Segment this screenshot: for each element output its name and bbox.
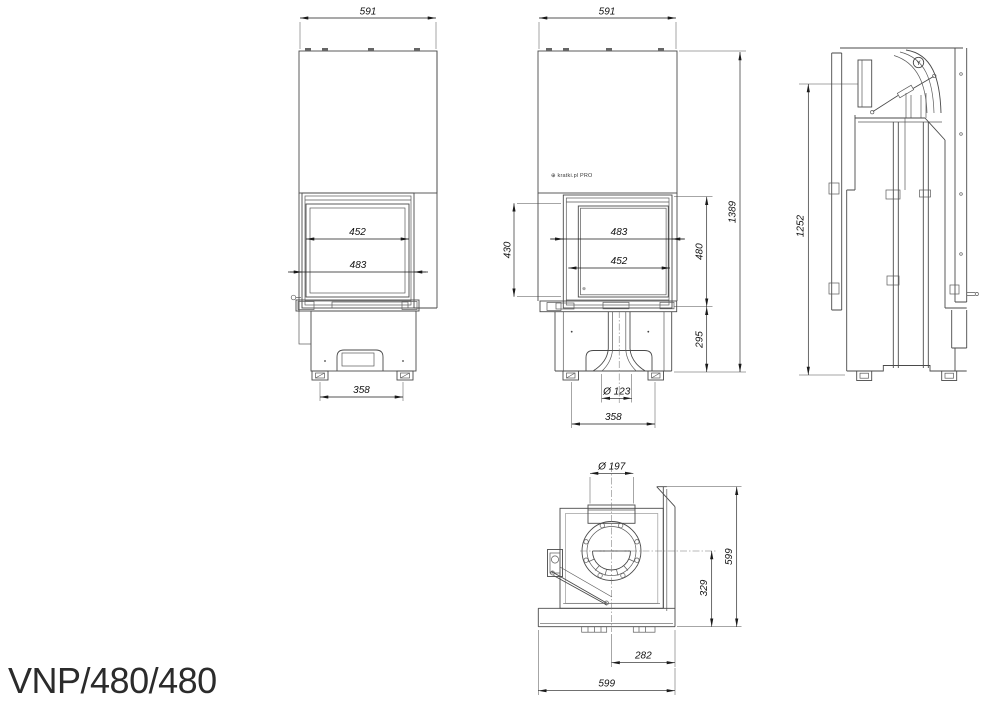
- dimension-glass-width: 452: [568, 256, 670, 268]
- foot-rear: [857, 371, 872, 381]
- rear-rail: [829, 53, 842, 310]
- dim-label: 452: [611, 256, 628, 267]
- door-handle: [291, 295, 296, 300]
- dim-label: 1389: [728, 200, 739, 223]
- hood: [299, 48, 437, 193]
- dim-label: 358: [353, 385, 370, 396]
- flue-collar: [580, 465, 716, 632]
- dimension-glass-height: 430: [503, 203, 562, 296]
- dimension-flue-to-side: 282: [612, 630, 676, 667]
- side-view: Y: [796, 48, 979, 381]
- dim-label: 599: [598, 679, 615, 690]
- dimension-base-height: 295: [674, 307, 746, 372]
- dim-label: 430: [503, 241, 514, 258]
- dim-label: Ø 197: [597, 462, 626, 473]
- front-view-a: 591 452 483 358: [288, 7, 437, 402]
- dimension-glass-width: 452: [306, 227, 409, 239]
- dimension-firebox-height: 480: [674, 197, 713, 307]
- hood: ⊕ kratki.pl PRO: [538, 48, 677, 193]
- base: [296, 300, 419, 380]
- front-rail: [955, 48, 978, 302]
- dimension-body-height: 1252: [796, 84, 859, 375]
- front-view-b: ⊕ kratki.pl PRO ⊕: [503, 7, 747, 429]
- valve-symbol: Y: [916, 60, 921, 67]
- dim-label: 483: [350, 260, 367, 271]
- drawing-canvas: 591 452 483 358 ⊕ kratki.pl PRO: [0, 0, 999, 712]
- dim-label: 282: [634, 651, 652, 662]
- foot-front: [942, 371, 957, 381]
- damper-mechanism: Y: [858, 50, 942, 122]
- dimension-flue-to-front: 329: [699, 551, 712, 627]
- technical-drawing: 591 452 483 358 ⊕ kratki.pl PRO: [0, 0, 999, 712]
- door-frame: ⊕: [538, 193, 677, 308]
- foot-right: [397, 371, 413, 380]
- convection-channel: [893, 122, 928, 368]
- glass-logo-mark: ⊕: [582, 286, 586, 291]
- dim-label: Ø 123: [602, 386, 631, 397]
- dimension-overall-height: 1389: [679, 51, 746, 372]
- dimension-air-inlet-diameter: Ø 123: [602, 374, 632, 403]
- foot-left: [563, 371, 579, 380]
- model-title: VNP/480/480: [8, 660, 217, 702]
- foot-left: [312, 371, 328, 380]
- deflector-plate: [858, 60, 872, 107]
- dim-label: 591: [360, 7, 377, 18]
- dimension-feet-spacing: 358: [320, 382, 403, 401]
- dimension-frame-width: 483: [288, 260, 428, 272]
- body: [847, 115, 967, 381]
- foot-right: [648, 371, 664, 380]
- dimension-side-depth: 599: [660, 487, 742, 627]
- side-glass-panel: [657, 487, 675, 627]
- dim-label: 591: [599, 7, 616, 18]
- kratki-logo: ⊕ kratki.pl PRO: [551, 173, 593, 179]
- dim-label: 358: [605, 412, 622, 423]
- door-frame: [291, 51, 437, 312]
- dimension-frame-width: 483: [550, 227, 685, 239]
- control-box: [548, 550, 563, 577]
- dim-label: 452: [349, 227, 366, 238]
- dim-label: 295: [695, 331, 706, 349]
- dim-label: 599: [724, 548, 735, 565]
- dim-label: 329: [699, 579, 710, 596]
- front-panel: [538, 608, 675, 632]
- dim-label: 1252: [796, 214, 807, 237]
- dim-label: 483: [611, 227, 628, 238]
- top-view: Ø 197 329 599 282 599: [538, 462, 741, 696]
- dimension-overall-width: 591: [539, 7, 676, 50]
- dim-label: 480: [695, 243, 706, 260]
- dimension-overall-width: 591: [300, 7, 436, 50]
